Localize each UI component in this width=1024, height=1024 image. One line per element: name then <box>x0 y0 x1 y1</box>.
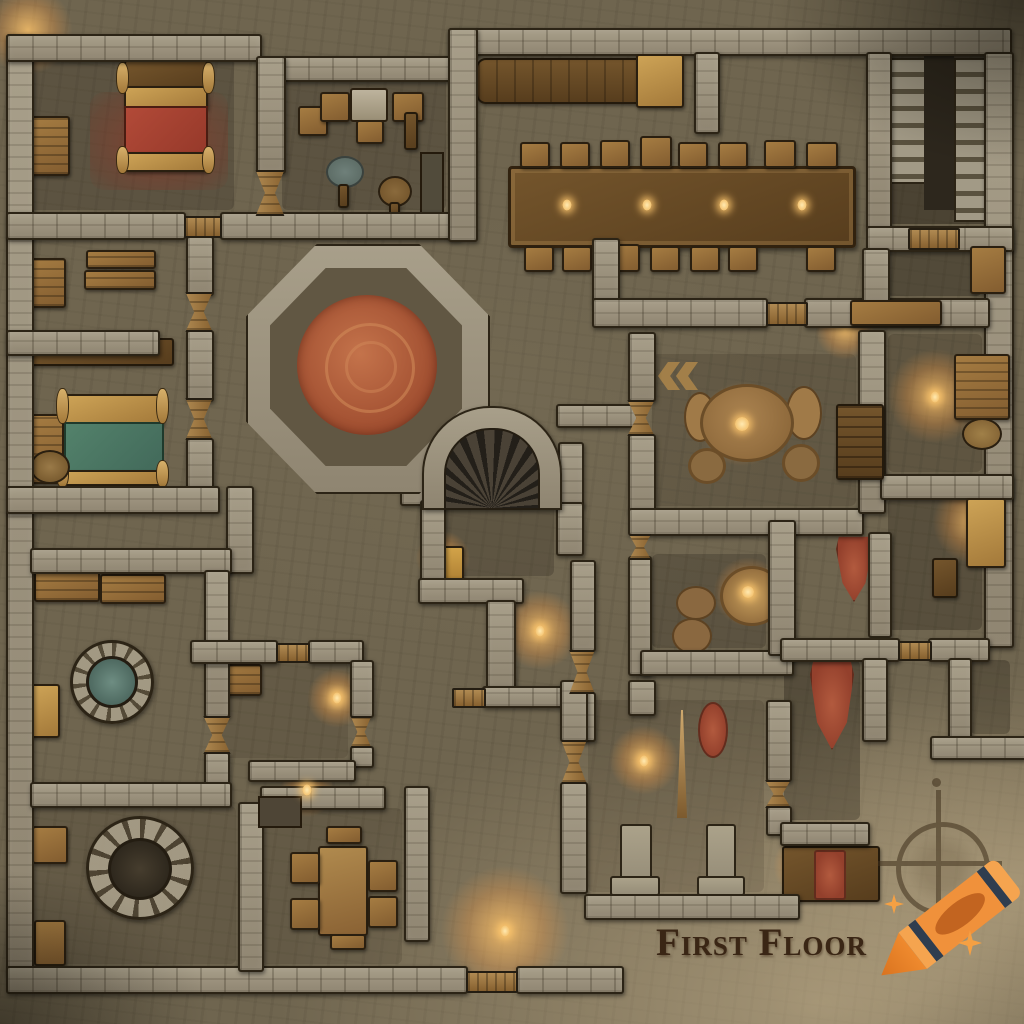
stool <box>562 246 592 272</box>
small-cabinet <box>932 558 958 598</box>
pillar-base <box>610 876 660 896</box>
well-water <box>86 656 138 708</box>
wall-segment <box>592 298 768 328</box>
wall-segment <box>186 236 214 296</box>
pillar-base <box>697 876 745 896</box>
wall-segment <box>448 28 1012 56</box>
shelf-plank <box>84 270 156 290</box>
crate <box>320 92 350 122</box>
corner-cabinet <box>970 246 1006 294</box>
wall-segment <box>556 502 584 556</box>
wall-segment <box>486 600 516 690</box>
door-threshold <box>182 292 216 332</box>
wall-segment <box>6 486 220 514</box>
pillar-shaft <box>620 824 652 884</box>
wall-segment <box>628 680 656 716</box>
wall-segment <box>862 658 888 742</box>
pot <box>962 418 1002 450</box>
crate <box>32 826 68 864</box>
table-leg <box>338 184 349 208</box>
candle-flame <box>798 200 807 211</box>
red-banner-rug <box>836 534 872 602</box>
wall-segment <box>628 508 864 536</box>
door-threshold <box>276 643 310 663</box>
door-threshold <box>452 688 486 708</box>
stool <box>672 618 712 654</box>
wall-segment <box>220 212 462 240</box>
hall-cabinet <box>636 54 684 108</box>
rug-swirl <box>345 341 397 393</box>
candle-flame <box>536 626 545 637</box>
green-bed-quilt <box>64 422 164 474</box>
wall-segment <box>868 532 892 638</box>
dungeon-map: First Floor <box>0 0 1024 1024</box>
study-desk <box>954 354 1010 420</box>
stool <box>524 246 554 272</box>
crate-light <box>350 88 388 122</box>
wall-segment <box>862 248 890 304</box>
bed-post <box>202 146 215 174</box>
pillar-shaft <box>706 824 736 884</box>
chair <box>368 896 398 928</box>
wall-segment <box>766 700 792 782</box>
stool <box>806 246 836 272</box>
candle-flame <box>720 200 729 211</box>
room-shadow <box>886 250 982 296</box>
chair <box>290 898 320 930</box>
door-threshold <box>898 641 932 661</box>
stool <box>520 142 550 168</box>
brazier-flame <box>742 586 754 598</box>
compass-dot <box>932 778 941 787</box>
wall-segment <box>694 52 720 134</box>
wall-segment <box>584 894 800 920</box>
chair <box>368 860 398 892</box>
dark-cabinet <box>258 796 302 828</box>
candle-flame <box>643 200 652 211</box>
bench <box>330 934 366 950</box>
chair <box>640 136 672 168</box>
door-threshold <box>466 971 518 993</box>
wall-segment <box>6 212 186 240</box>
stairwell-gap <box>924 56 954 210</box>
red-runner <box>814 850 846 900</box>
wall-segment <box>560 782 588 894</box>
basket <box>30 450 70 484</box>
candle-flame <box>735 417 749 431</box>
stool <box>690 246 720 272</box>
door-threshold <box>766 302 808 326</box>
bed-post <box>116 62 129 94</box>
stool <box>764 140 796 168</box>
side-bench <box>850 300 942 326</box>
bench <box>326 826 362 844</box>
door-threshold <box>182 398 216 440</box>
floor-title: First Floor <box>656 920 867 965</box>
wall-segment <box>420 500 446 584</box>
candle-flame <box>303 785 312 796</box>
bed-post <box>56 388 69 424</box>
spiral-stool <box>782 444 820 482</box>
stool <box>560 142 590 168</box>
wall-segment <box>404 786 430 942</box>
stool <box>718 142 748 168</box>
wall-segment <box>628 332 656 402</box>
red-bed-quilt <box>124 106 208 156</box>
wall-segment <box>570 560 596 652</box>
dry-well-pit <box>108 838 172 900</box>
wall-segment <box>190 640 278 664</box>
wall-segment <box>282 56 456 82</box>
door-threshold <box>558 740 590 784</box>
stool <box>806 142 838 168</box>
wall-segment <box>350 660 374 718</box>
bed-post <box>156 388 169 424</box>
wall-segment <box>30 548 232 574</box>
stool <box>650 246 680 272</box>
wall-segment <box>948 658 972 742</box>
door-threshold <box>908 228 960 250</box>
stool <box>600 140 630 168</box>
wall-segment <box>448 28 478 242</box>
candle-flame <box>931 392 940 403</box>
crate <box>356 120 384 144</box>
chair <box>290 852 320 884</box>
bed-post <box>156 460 169 488</box>
room-shadow <box>588 700 764 892</box>
wall-segment <box>768 520 796 656</box>
wall-segment <box>592 238 620 304</box>
wall-segment <box>628 434 656 514</box>
bedroom-cabinet <box>28 116 70 176</box>
wall-segment <box>6 966 468 994</box>
candle-flame <box>563 200 572 211</box>
wall-segment <box>186 330 214 402</box>
crate <box>34 920 66 966</box>
dining-table <box>318 846 368 936</box>
stool <box>728 246 758 272</box>
door-threshold <box>184 216 222 238</box>
candle-flame <box>333 693 342 704</box>
wall-segment <box>780 822 870 846</box>
wall-segment <box>256 56 286 174</box>
side-bench <box>30 684 60 738</box>
wall-segment <box>30 782 232 808</box>
bed-foot-band <box>64 470 164 486</box>
hearth-recess <box>444 428 540 510</box>
bed-post <box>116 146 129 174</box>
bed-post <box>202 62 215 94</box>
wall-segment <box>186 438 214 492</box>
candle-flame <box>640 756 649 767</box>
wall-segment <box>516 966 624 994</box>
wall-segment <box>930 736 1024 760</box>
stool <box>678 142 708 168</box>
bench <box>100 574 166 604</box>
candle-flame <box>501 926 510 937</box>
wall-segment <box>866 52 892 230</box>
staircase-flight <box>890 58 928 184</box>
wall-segment <box>6 34 262 62</box>
shelf-plank <box>86 250 156 269</box>
gold-cabinet <box>966 498 1006 568</box>
bed-foot-band <box>124 152 208 172</box>
patterned-cabinet <box>836 404 884 480</box>
red-oval-rug <box>698 702 728 758</box>
room-shadow <box>970 660 1010 734</box>
bench <box>34 570 100 602</box>
plank <box>404 112 418 150</box>
dark-cabinet <box>420 152 444 214</box>
wall-segment <box>6 330 160 356</box>
wall-segment <box>556 404 638 428</box>
wall-segment <box>880 474 1014 500</box>
stool <box>676 586 716 620</box>
wall-segment <box>248 760 356 782</box>
